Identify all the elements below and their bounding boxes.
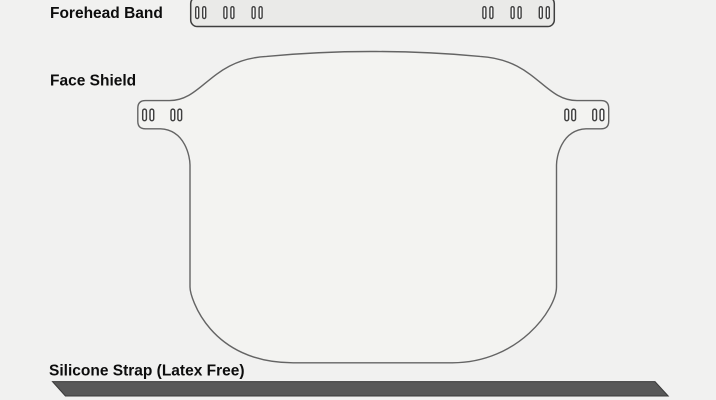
svg-text:Face Shield: Face Shield xyxy=(50,73,136,90)
svg-text:Silicone Strap (Latex Free): Silicone Strap (Latex Free) xyxy=(49,363,245,380)
svg-text:Forehead Band: Forehead Band xyxy=(50,5,163,22)
